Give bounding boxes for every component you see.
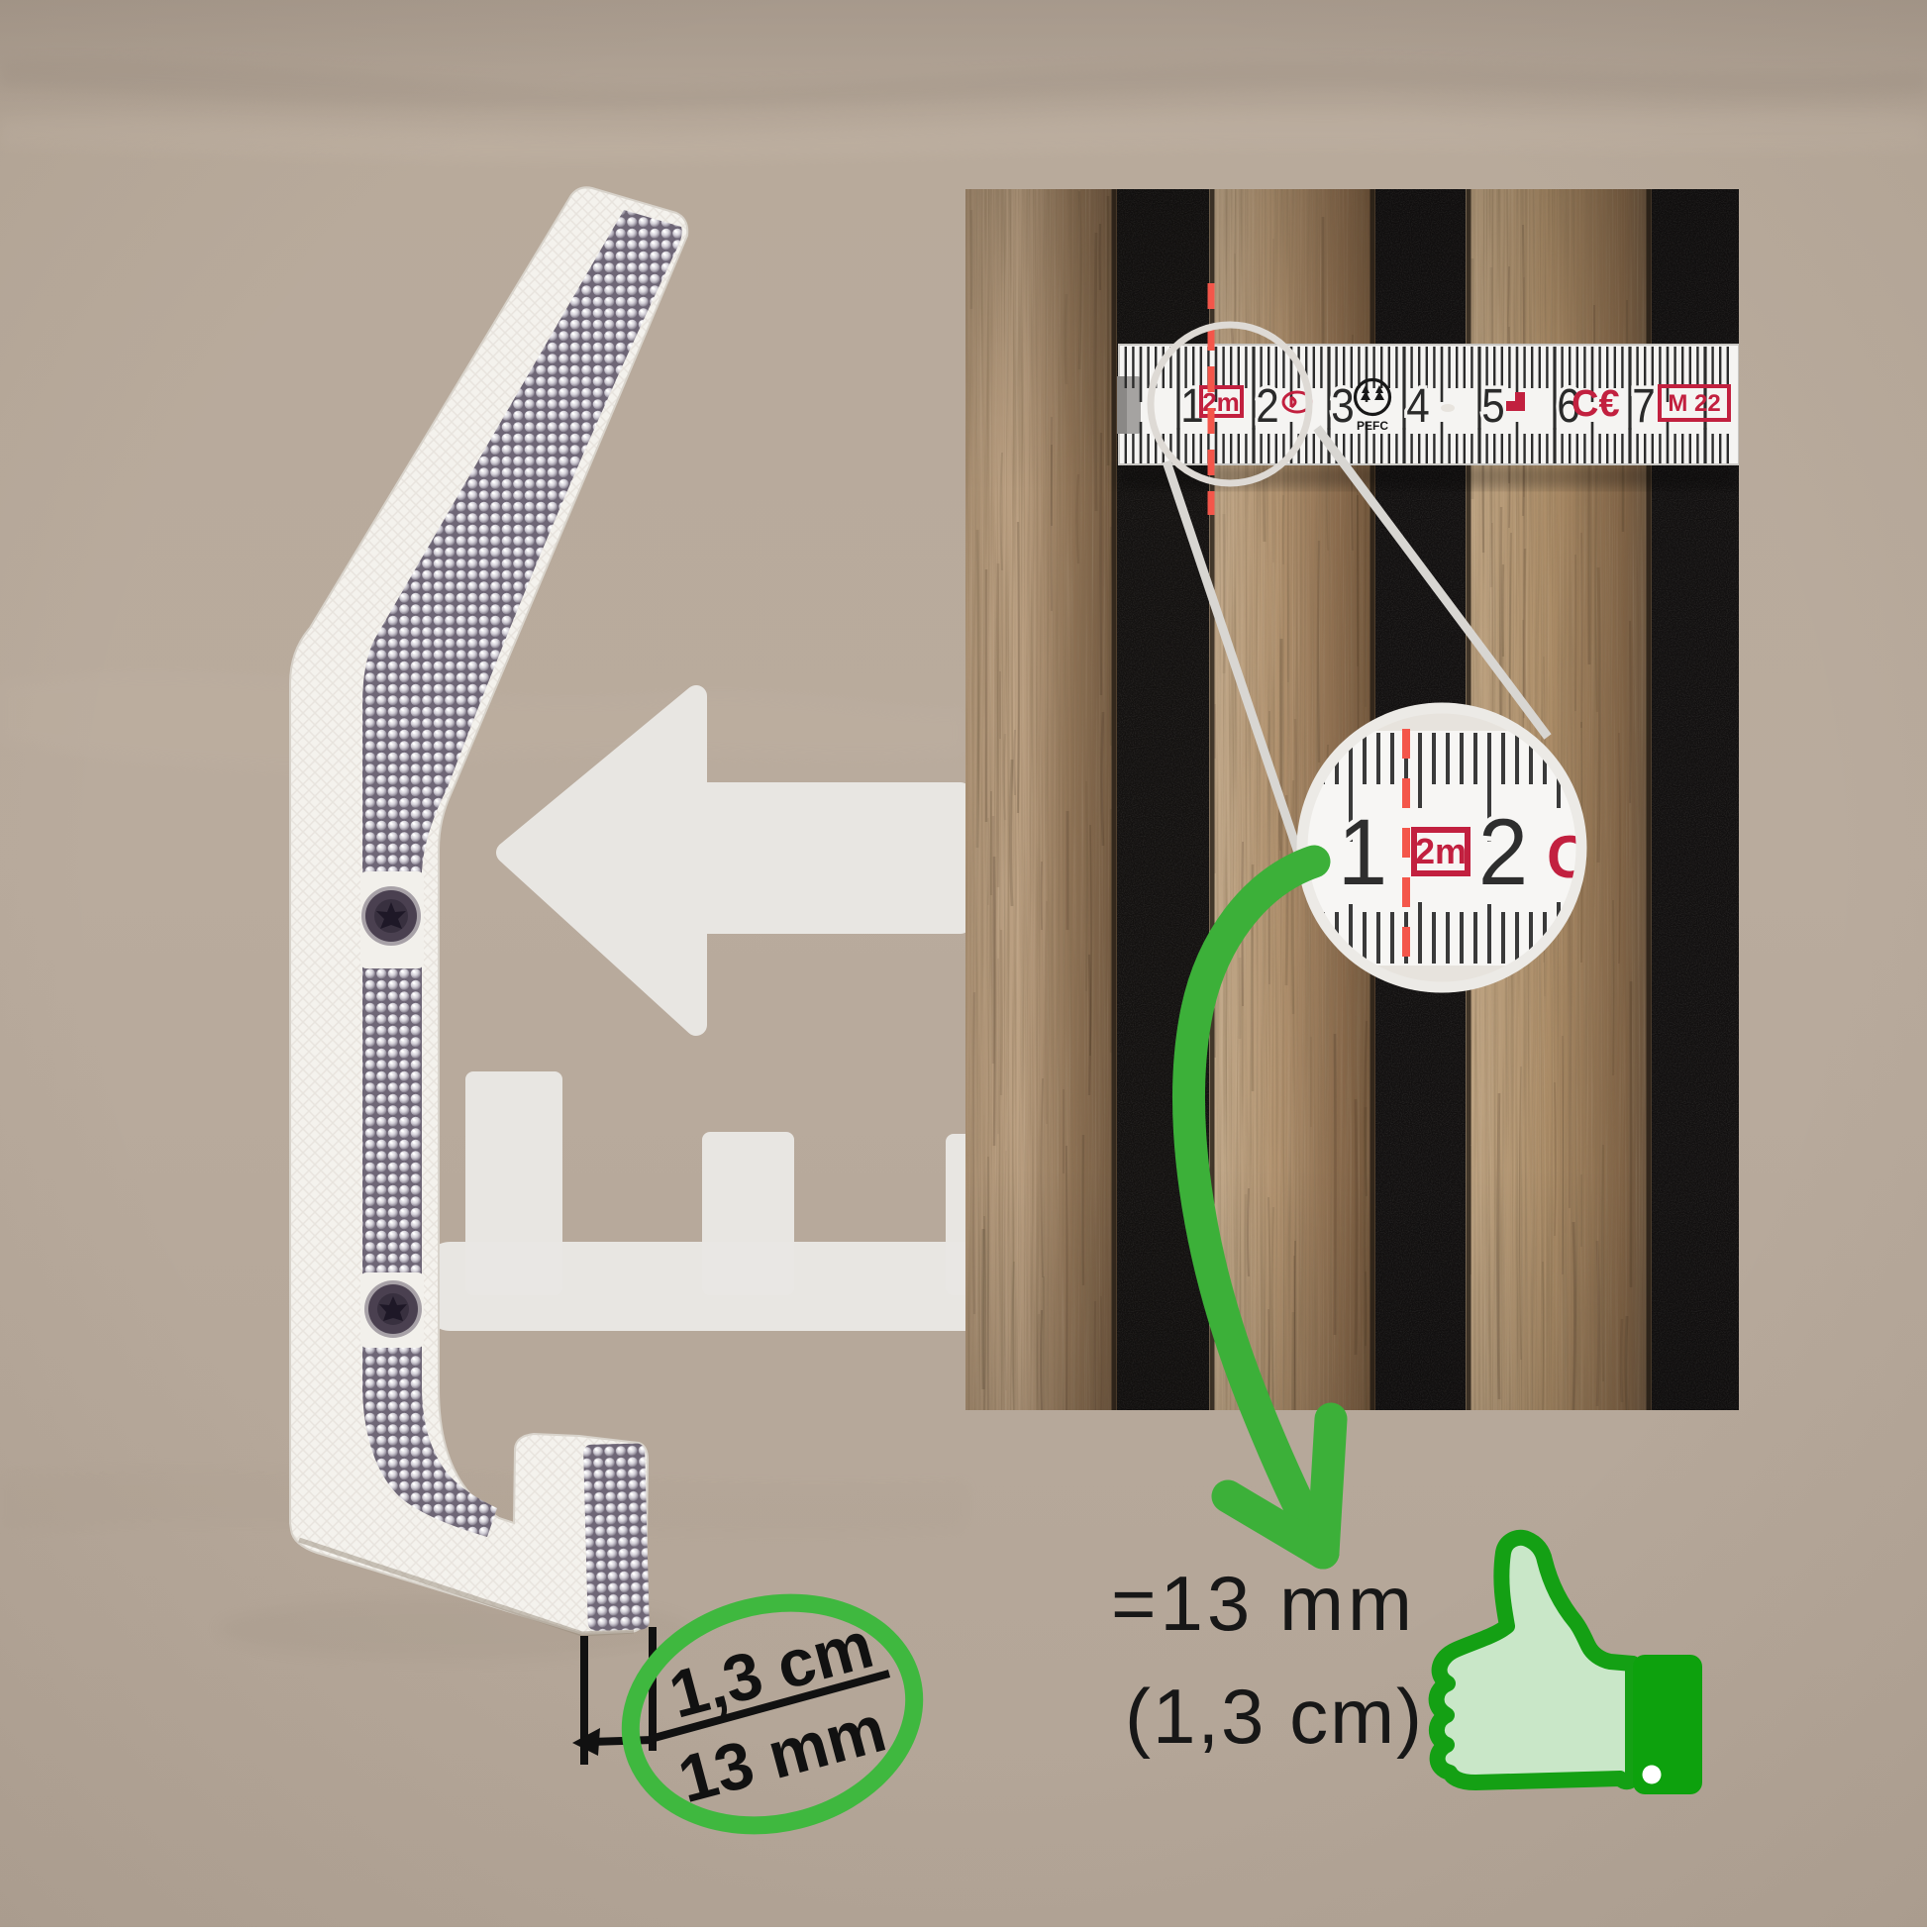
svg-text:2: 2 — [1256, 378, 1278, 432]
svg-text:5: 5 — [1481, 378, 1504, 432]
svg-text:(1,3 cm): (1,3 cm) — [1125, 1673, 1424, 1760]
svg-text:7: 7 — [1632, 378, 1655, 432]
svg-text:M 22: M 22 — [1668, 390, 1720, 417]
svg-text:PEFC: PEFC — [1357, 419, 1388, 433]
svg-text:2: 2 — [1478, 799, 1528, 905]
svg-text:=13 mm: =13 mm — [1111, 1560, 1416, 1647]
svg-text:4: 4 — [1406, 378, 1429, 432]
svg-text:1: 1 — [1338, 799, 1387, 905]
svg-text:C€: C€ — [1572, 383, 1620, 425]
svg-text:3: 3 — [1331, 378, 1354, 432]
svg-text:2m: 2m — [1415, 831, 1467, 871]
